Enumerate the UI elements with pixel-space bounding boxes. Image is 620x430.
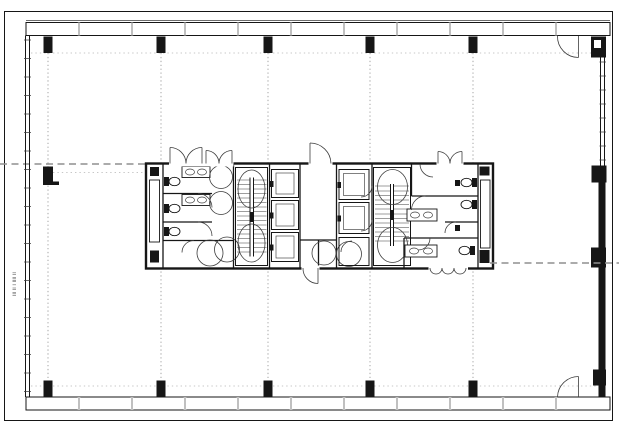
column	[264, 37, 273, 54]
toilet	[459, 246, 475, 255]
column	[157, 381, 166, 398]
core-fill	[146, 164, 493, 269]
column-notch	[594, 40, 601, 48]
column	[366, 37, 375, 54]
shaft	[150, 180, 160, 242]
floor-plan-sheet: lll ll l llll ll	[0, 0, 620, 430]
wall-right-solid	[599, 169, 606, 397]
sink-counter	[182, 167, 210, 178]
column	[469, 37, 478, 54]
urinal	[455, 180, 460, 186]
floor-plan-canvas: lll ll l llll ll	[0, 0, 620, 430]
toilet	[164, 227, 180, 236]
shaft-equipment	[480, 167, 490, 176]
toilet	[164, 204, 180, 213]
column-mid-west	[43, 167, 53, 182]
stair-rail-post	[251, 212, 254, 222]
column-foot	[43, 182, 59, 186]
sink-counter	[407, 209, 437, 221]
column	[44, 381, 53, 398]
building-core	[146, 143, 493, 284]
column	[469, 381, 478, 398]
margin-note: lll ll l llll ll	[12, 272, 18, 296]
shaft-equipment	[150, 167, 159, 176]
toilet	[461, 200, 477, 209]
column	[44, 37, 53, 54]
column	[366, 381, 375, 398]
toilet	[164, 177, 180, 186]
column	[264, 381, 273, 398]
shaft	[481, 180, 491, 248]
sink-counter	[405, 245, 437, 257]
column-mid-east-upper	[592, 166, 607, 183]
stair-rail-post	[391, 210, 394, 220]
column	[157, 37, 166, 54]
toilet	[461, 178, 477, 187]
shaft-equipment	[150, 251, 159, 263]
urinal	[455, 225, 460, 231]
shaft-equipment	[480, 250, 490, 263]
column-mid-east-lower	[591, 248, 606, 268]
column-corner-se	[593, 370, 606, 386]
